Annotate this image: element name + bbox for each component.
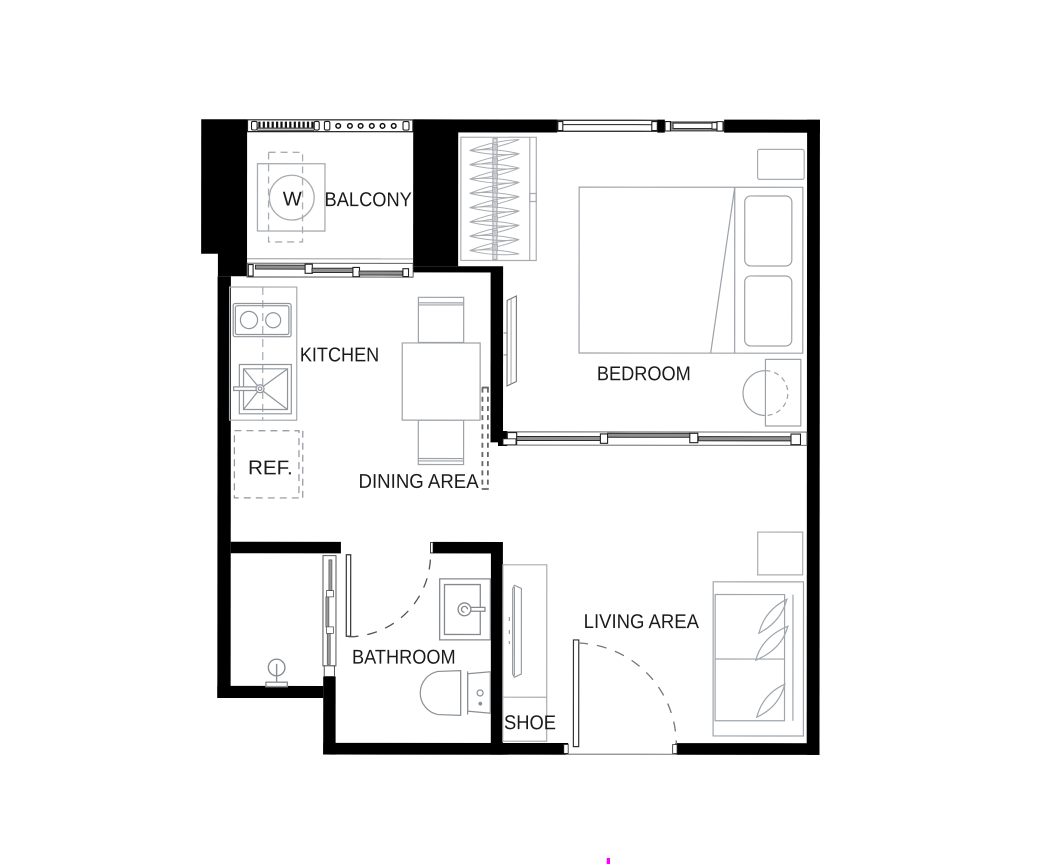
svg-text:BEDROOM: BEDROOM xyxy=(597,363,691,385)
svg-text:DINING AREA: DINING AREA xyxy=(359,471,480,493)
svg-text:BATHROOM: BATHROOM xyxy=(352,647,456,669)
svg-text:BALCONY: BALCONY xyxy=(325,189,412,211)
svg-text:W: W xyxy=(283,189,302,211)
svg-text:KITCHEN: KITCHEN xyxy=(300,344,379,366)
svg-text:REF.: REF. xyxy=(248,457,293,479)
svg-text:SHOE: SHOE xyxy=(504,712,556,734)
svg-text:LIVING AREA: LIVING AREA xyxy=(584,611,700,633)
